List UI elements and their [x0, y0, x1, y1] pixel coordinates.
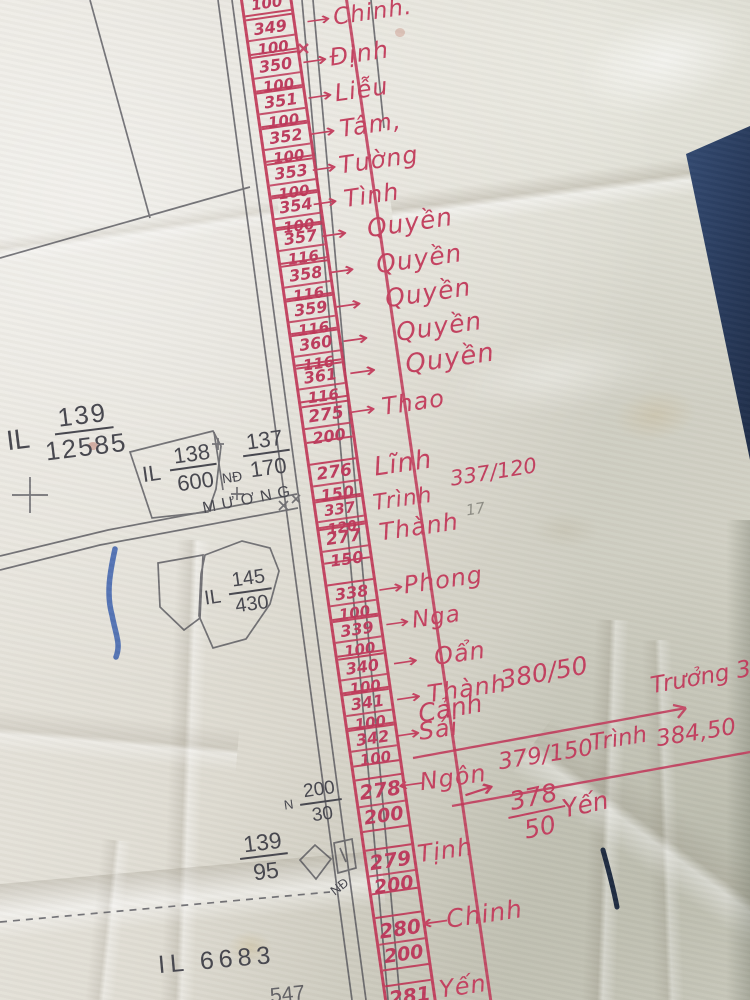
ledger-name-1: →Định	[299, 35, 390, 75]
ledger-cell-275: 275200	[302, 400, 353, 444]
parcel-area: 170	[248, 452, 288, 482]
ledger-cell-279: 279200	[365, 843, 417, 895]
ledger-name-0: →Chinh.	[304, 0, 414, 35]
blue-cover-corner	[686, 126, 750, 460]
parcel-label-partial: 547	[269, 982, 306, 1000]
parcel-area: 430	[234, 590, 270, 617]
ledger-name-23: Yến	[437, 969, 488, 1000]
parcel-prefix: IL	[141, 461, 162, 485]
survey-cross	[12, 477, 48, 513]
parcel-label-139-95: 139 95	[237, 827, 292, 886]
photographed-cadastral-map: 100 349100350100351100352100353100354100…	[0, 0, 750, 1000]
parcel-area: 600	[175, 466, 215, 496]
ledger-cell-352: 352100	[262, 122, 313, 163]
ledger-cell-342: 342100	[348, 723, 399, 767]
blue-pen-mark	[109, 549, 118, 657]
parcel-label-145: IL 145 430	[201, 565, 275, 621]
parcel-label-200-30: 200 30	[297, 777, 345, 827]
ledger-cell-361: 361116	[296, 361, 347, 403]
ledger-name-15: →Phong	[375, 560, 484, 603]
parcel-label-138: IL 138 600	[139, 439, 220, 500]
ledger-cell-276: 276150	[310, 457, 361, 501]
parcel-prefix: IL	[203, 586, 222, 608]
dashed-boundary	[0, 892, 330, 922]
value-378-50: 378 50	[503, 779, 571, 847]
fraction-denominator: 50	[521, 810, 558, 844]
ledger-name-2: →Liễu	[305, 72, 391, 111]
ledger-name-12: Lĩnh	[372, 444, 434, 482]
land-type-nd: NĐ	[221, 469, 243, 486]
ledger-cell-281: 281	[385, 979, 437, 1000]
ledger-cell-339: 339100	[333, 615, 384, 658]
north-mark: N	[283, 797, 294, 811]
parcel-prefix: IL	[5, 424, 32, 455]
pencil-note: 17	[465, 501, 486, 519]
ledger-cell-349: 349100	[246, 13, 297, 56]
ledger-name-17: →Oẩn	[390, 636, 487, 677]
ledger-name-22: ←Chinh	[419, 894, 524, 937]
ledger-name-11: →Thao	[348, 384, 447, 425]
ledger-name-21: Tịnh	[416, 833, 475, 869]
parcel-number: 139	[237, 827, 288, 860]
parcel-label-137: 137 170	[240, 425, 293, 482]
ledger-name-3: →Tâm,	[308, 106, 403, 147]
ledger-name-16: →Nga	[383, 601, 463, 638]
ledger-cell-360: 360116	[291, 329, 341, 367]
parcel-area: 30	[310, 801, 334, 826]
ledger-cell-277: 277150	[319, 523, 370, 565]
parcel-number: 200	[297, 777, 341, 806]
parcel-area: 95	[252, 856, 281, 885]
ledger-name-4: →Tường	[309, 140, 420, 183]
